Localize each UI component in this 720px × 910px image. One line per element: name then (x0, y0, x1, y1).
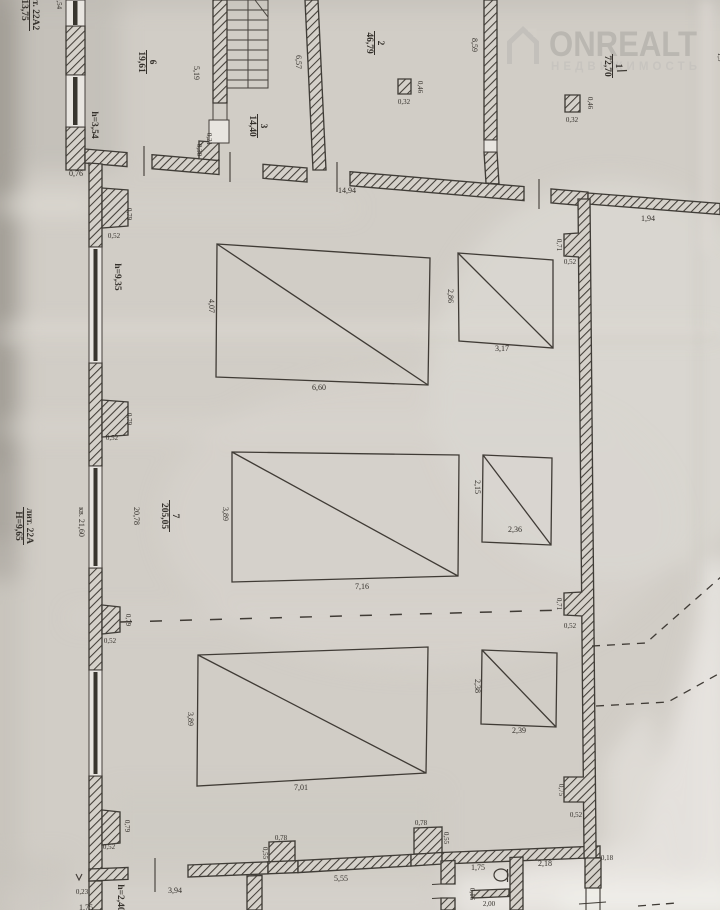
svg-text:6: 6 (147, 60, 157, 65)
svg-text:1,94: 1,94 (641, 214, 655, 223)
svg-text:h=3,54: h=3,54 (89, 111, 99, 139)
svg-text:1,75: 1,75 (471, 863, 485, 872)
svg-text:лит. 22А: лит. 22А (24, 508, 34, 544)
svg-text:0,71: 0,71 (555, 239, 563, 252)
svg-text:0,79: 0,79 (123, 820, 131, 833)
svg-text:7,16: 7,16 (355, 582, 369, 591)
svg-text:0,16: 0,16 (468, 888, 476, 901)
svg-text:8,59: 8,59 (470, 38, 479, 52)
svg-text:5,55: 5,55 (334, 874, 348, 883)
svg-text:0,55: 0,55 (261, 847, 269, 860)
svg-text:0,52: 0,52 (108, 232, 121, 240)
svg-text:14,40: 14,40 (247, 115, 257, 137)
svg-text:0,75: 0,75 (557, 784, 565, 797)
svg-text:0,79: 0,79 (124, 614, 132, 627)
svg-text:19,61: 19,61 (136, 51, 146, 73)
svg-text:6,60: 6,60 (312, 383, 326, 392)
svg-text:46,79: 46,79 (364, 32, 374, 54)
svg-text:14,94: 14,94 (338, 186, 356, 195)
svg-text:h=2,40: h=2,40 (115, 884, 125, 910)
svg-text:20,78: 20,78 (132, 507, 141, 525)
svg-text:0,46: 0,46 (586, 97, 594, 110)
svg-text:0,32: 0,32 (398, 98, 411, 106)
svg-text:5,19: 5,19 (192, 66, 201, 80)
svg-text:0,76: 0,76 (69, 169, 83, 178)
svg-text:0,21: 0,21 (205, 133, 213, 146)
svg-text:лит. 22А2: лит. 22А2 (30, 0, 40, 31)
svg-text:72,70: 72,70 (602, 55, 612, 77)
svg-text:кв. 21,60: кв. 21,60 (77, 507, 86, 537)
svg-text:7,01: 7,01 (294, 783, 308, 792)
svg-text:0,52: 0,52 (103, 843, 116, 851)
svg-text:0,32: 0,32 (566, 116, 579, 124)
svg-text:0,18: 0,18 (601, 854, 614, 862)
svg-text:2,86: 2,86 (446, 289, 455, 303)
svg-text:2: 2 (375, 41, 385, 46)
svg-text:2,36: 2,36 (508, 525, 522, 534)
svg-text:3,17: 3,17 (495, 344, 509, 353)
svg-text:0,78: 0,78 (415, 819, 428, 827)
svg-text:2,38: 2,38 (473, 679, 482, 693)
svg-text:0,55: 0,55 (442, 832, 450, 845)
svg-text:0,52: 0,52 (564, 622, 577, 630)
svg-text:3,89: 3,89 (186, 712, 195, 726)
svg-text:0,23: 0,23 (76, 888, 89, 896)
svg-text:0,78: 0,78 (275, 834, 288, 842)
svg-text:0,54: 0,54 (55, 0, 63, 10)
svg-text:1: 1 (613, 64, 623, 69)
svg-text:3: 3 (258, 124, 268, 129)
svg-text:0,30: 0,30 (195, 144, 203, 157)
svg-text:0,52: 0,52 (104, 637, 117, 645)
svg-text:2,15: 2,15 (473, 480, 482, 494)
svg-text:1,75: 1,75 (79, 903, 93, 910)
svg-text:0,52: 0,52 (564, 258, 577, 266)
svg-text:2,39: 2,39 (512, 726, 526, 735)
svg-text:Н=9,65: Н=9,65 (13, 511, 23, 541)
svg-text:0,79: 0,79 (125, 413, 133, 426)
svg-text:6,57: 6,57 (294, 55, 303, 69)
svg-text:7: 7 (170, 514, 180, 519)
svg-text:0,79: 0,79 (125, 208, 133, 221)
svg-text:205,05: 205,05 (159, 503, 169, 529)
svg-text:h=9,35: h=9,35 (112, 263, 122, 291)
svg-text:0,52: 0,52 (106, 434, 119, 442)
svg-text:0,52: 0,52 (570, 811, 583, 819)
svg-text:0,71: 0,71 (555, 598, 563, 611)
svg-text:2,18: 2,18 (538, 859, 552, 868)
svg-text:ONREALT: ONREALT (549, 25, 697, 64)
svg-text:3,89: 3,89 (221, 507, 230, 521)
svg-text:13,75: 13,75 (19, 0, 29, 21)
svg-text:3,94: 3,94 (168, 886, 182, 895)
svg-text:0,46: 0,46 (416, 81, 424, 94)
svg-text:1,5: 1,5 (716, 53, 720, 62)
svg-text:2,00: 2,00 (483, 900, 496, 908)
svg-text:4,07: 4,07 (207, 299, 216, 313)
